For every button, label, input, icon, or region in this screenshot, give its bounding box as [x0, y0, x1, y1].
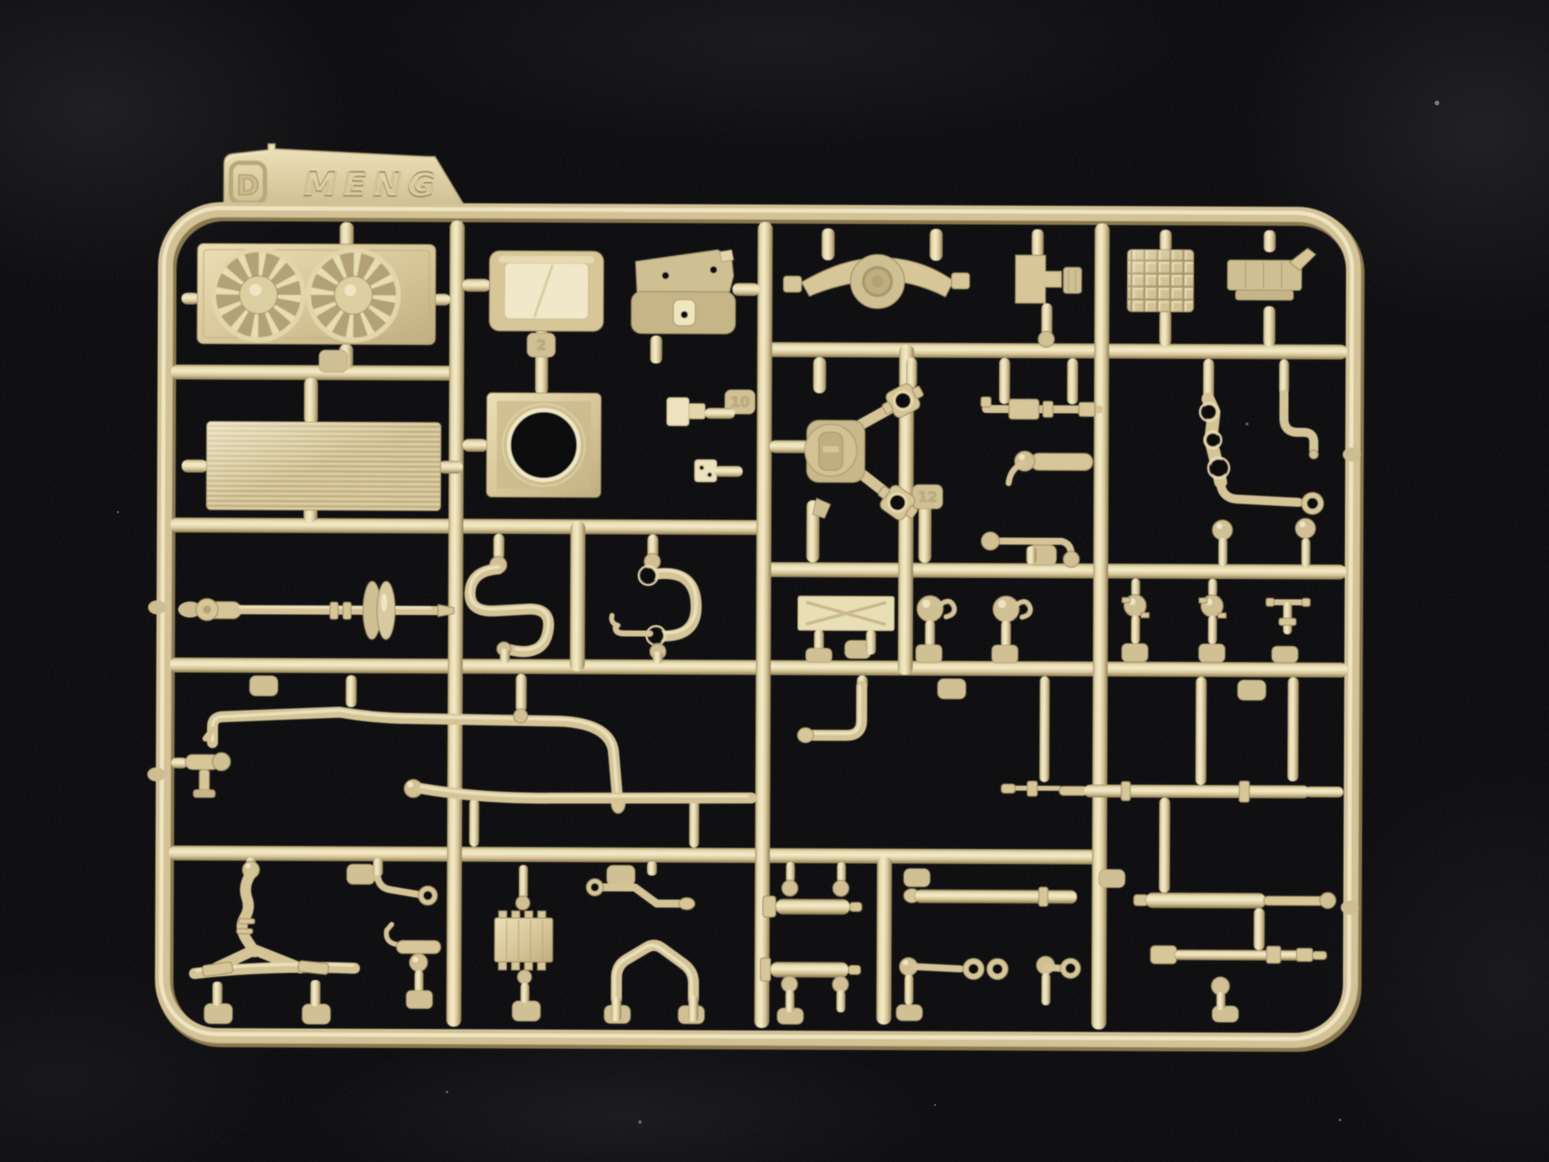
tag-number-10: 10 — [730, 395, 750, 411]
tag-number-12: 12 — [918, 490, 938, 506]
part-radiator-panel — [206, 422, 440, 511]
part-hatch-ring-plate — [487, 393, 601, 497]
part-twin-cooling-fans — [197, 244, 435, 345]
part-waffle-tread-block — [1127, 250, 1193, 312]
part-commander-cupola — [631, 249, 735, 333]
brand-logo: MENG — [300, 163, 445, 202]
sprue-photo: D MENG MENG — [0, 0, 1549, 1162]
part-windshield-frame — [489, 251, 603, 331]
tag-number-2: 2 — [536, 338, 546, 354]
sprue-letter: D — [236, 169, 259, 202]
photo-stage: D MENG MENG — [0, 0, 1549, 1162]
